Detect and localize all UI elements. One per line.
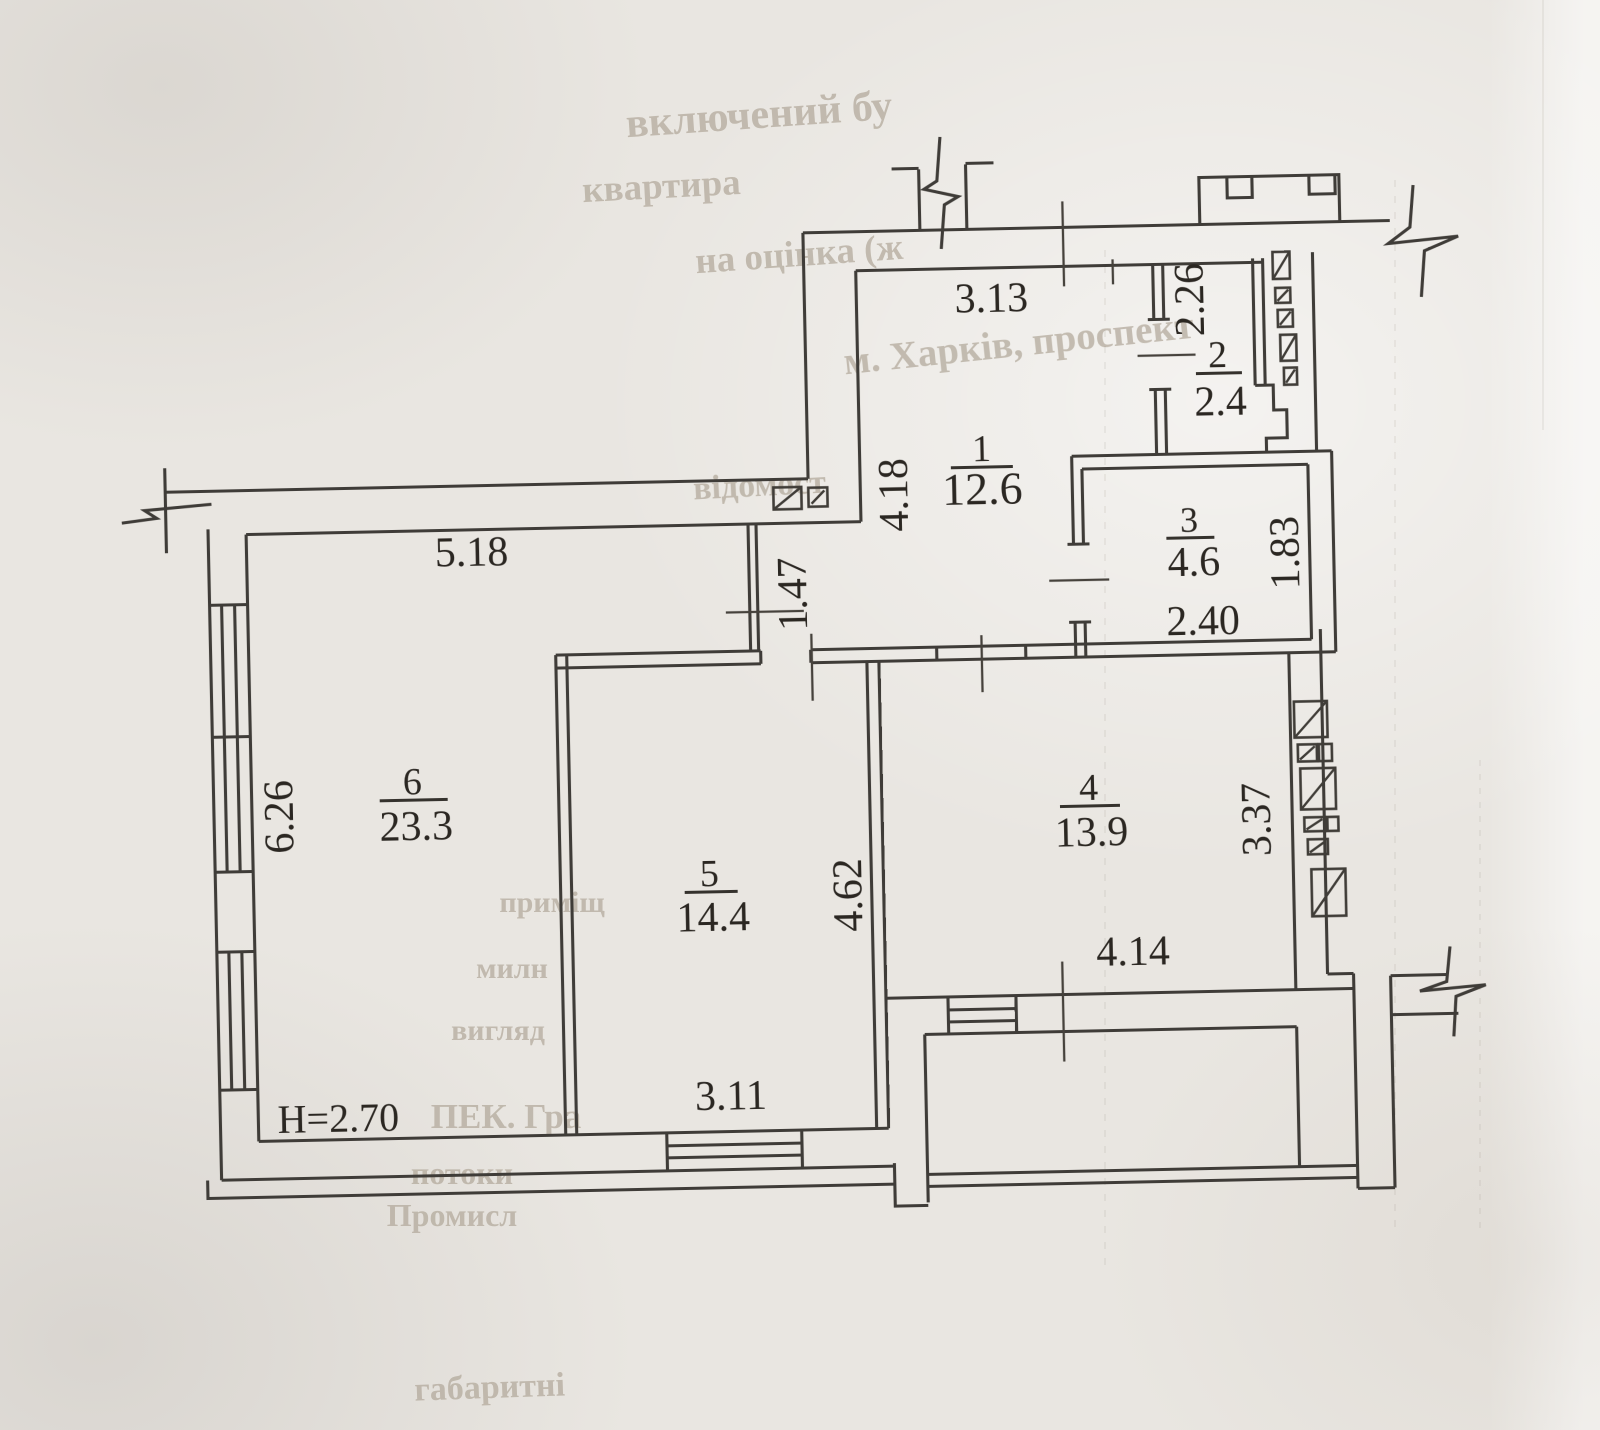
bleed-text: Промисл xyxy=(387,1197,518,1233)
room-number-label: 5 xyxy=(699,853,719,895)
dimension-tick xyxy=(1138,355,1196,356)
bleed-text: приміщ xyxy=(499,886,605,919)
window-glazing-icon xyxy=(217,951,258,1090)
break-line-icon xyxy=(1387,184,1459,297)
dimension-label: 3.11 xyxy=(695,1073,768,1120)
dimension-tick xyxy=(1113,259,1114,284)
ceiling-height-label: H=2.70 xyxy=(277,1094,399,1142)
wall-path xyxy=(208,529,222,1180)
window-hatch-icon xyxy=(1306,819,1322,829)
wall-path xyxy=(246,522,861,535)
wall-path xyxy=(1072,451,1332,469)
dimension-tick xyxy=(811,634,812,701)
bleed-text: вигляд xyxy=(451,1014,545,1047)
wall-path xyxy=(886,988,1354,998)
dimension-label: 1.47 xyxy=(770,557,818,631)
window-glazing-icon xyxy=(948,996,1017,1034)
room-number-label: 2 xyxy=(1208,334,1228,376)
wall-path xyxy=(925,1027,1297,1035)
dimension-label: 3.37 xyxy=(1234,782,1282,856)
dimension-tick xyxy=(1062,201,1064,286)
wall-path xyxy=(222,1166,895,1180)
floor-plan-drawing: включений бу квартира на оцінка (ж м. Ха… xyxy=(0,0,1600,1430)
dimension-label: 4.18 xyxy=(871,458,919,532)
dimension-label: 6.26 xyxy=(256,780,304,854)
wall-path xyxy=(1354,973,1395,1189)
bleed-text: на оцінка (ж xyxy=(694,227,905,282)
dimension-label: 4.14 xyxy=(1096,928,1170,976)
room-area-label: 12.6 xyxy=(942,462,1024,515)
bleed-text: включений бу xyxy=(624,83,893,147)
vent-shaft-icon xyxy=(1280,312,1291,325)
bleed-text: габаритні xyxy=(414,1366,566,1408)
wall-path xyxy=(556,652,1336,668)
dimension-tick xyxy=(981,635,982,692)
room-area-label: 4.6 xyxy=(1167,539,1220,586)
wall-path xyxy=(925,1034,929,1202)
room-area-label: 13.9 xyxy=(1054,809,1128,857)
wall-path xyxy=(1309,175,1335,195)
room-area-label: 14.4 xyxy=(676,894,750,942)
vent-shaft-icon xyxy=(1272,252,1290,279)
dimension-label: 2.40 xyxy=(1166,598,1240,646)
wall-path xyxy=(1308,451,1336,652)
wall-path xyxy=(894,1162,928,1206)
room-number-label: 6 xyxy=(402,761,422,803)
room-area-label: 2.4 xyxy=(1194,379,1247,426)
labels-layer: 1 12.6 2 2.4 3 4.6 4 13.9 5 14.4 6 23.3 … xyxy=(246,261,1321,1143)
bleed-through-text-layer: включений бу квартира на оцінка (ж м. Ха… xyxy=(387,83,1196,1409)
window-hatch-icon xyxy=(1300,768,1336,810)
dimension-tick xyxy=(1049,579,1109,580)
wall-path xyxy=(1199,175,1340,225)
vent-shaft-icon xyxy=(1277,290,1288,301)
vent-shaft-icon xyxy=(1280,335,1297,361)
wall-path xyxy=(1312,252,1316,451)
dimension-label: 1.83 xyxy=(1262,516,1310,590)
balcony-railing xyxy=(928,1165,1358,1186)
wall-path xyxy=(1072,456,1086,657)
dimension-label: 2.26 xyxy=(1167,263,1215,337)
wall-path xyxy=(748,524,759,651)
dimension-label: 4.62 xyxy=(825,858,873,932)
room-number-label: 3 xyxy=(1180,500,1199,540)
wall-path xyxy=(1297,1027,1300,1167)
wall-path xyxy=(1253,258,1266,385)
break-line-icon xyxy=(165,468,167,553)
window-glazing-icon xyxy=(210,605,254,873)
wall-path xyxy=(1227,176,1252,198)
scanned-floor-plan-page: включений бу квартира на оцінка (ж м. Ха… xyxy=(0,0,1600,1430)
wall-path xyxy=(1255,385,1287,453)
door-jamb xyxy=(1067,544,1091,622)
window-hatch-icon xyxy=(1319,744,1332,761)
wall-path xyxy=(1328,973,1354,974)
bleed-text: квартира xyxy=(581,162,741,211)
vent-shaft-icon xyxy=(1286,370,1295,383)
window-hatch-icon xyxy=(1327,817,1338,831)
window-hatch-icon xyxy=(1300,746,1315,759)
room-area-label: 23.3 xyxy=(379,803,453,851)
break-line-icon xyxy=(1419,946,1487,1037)
wall-path xyxy=(1153,264,1167,454)
wall-path xyxy=(1320,629,1327,974)
plan-geometry: 1 12.6 2 2.4 3 4.6 4 13.9 5 14.4 6 23.3 … xyxy=(114,126,1490,1222)
bleed-text: ПЕК. Гра xyxy=(431,1097,581,1136)
break-line-icon xyxy=(923,137,959,250)
wall-path xyxy=(856,271,861,522)
wall-path xyxy=(208,1166,895,1198)
walls-layer xyxy=(114,126,1490,1222)
dimension-label: 5.18 xyxy=(434,529,508,577)
bleed-text: милн xyxy=(476,952,548,985)
window-glazing-icon xyxy=(667,1130,803,1171)
dimension-label: 3.13 xyxy=(954,275,1028,323)
room-number-label: 4 xyxy=(1079,767,1099,809)
window-hatch-icon xyxy=(1311,869,1346,917)
dimension-tick xyxy=(1062,962,1064,1062)
